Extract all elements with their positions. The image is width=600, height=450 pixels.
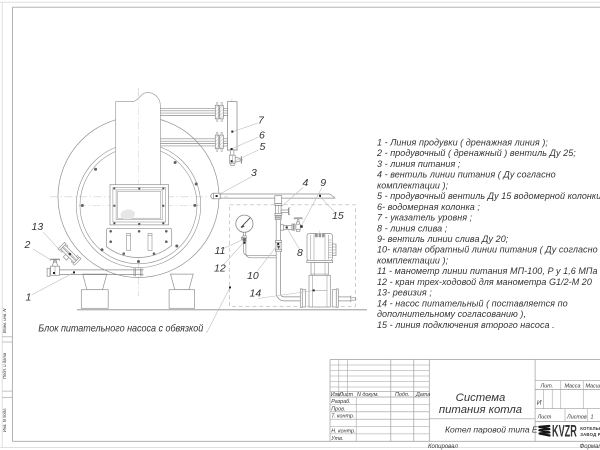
svg-text:Котел паровой типа Е: Котел паровой типа Е [445,424,538,434]
svg-text:5: 5 [260,141,266,153]
svg-text:Взам. инв. N: Взам. инв. N [2,308,7,333]
svg-text:Подп. и дата: Подп. и дата [2,352,7,379]
svg-text:Инв. N подл.: Инв. N подл. [2,408,7,432]
svg-text:ЗАВОД РУСТ: ЗАВОД РУСТ [580,432,600,437]
svg-text:12 - кран трех-ходовой для ма: 12 - кран трех-ходовой для манометра G1/… [377,277,592,287]
svg-text:15 - линия подключения второг: 15 - линия подключения второго насоса . [377,320,555,330]
svg-text:Лист: Лист [537,415,552,421]
svg-text:13- ревизия ;: 13- ревизия ; [377,288,432,298]
svg-text:Н. контр.: Н. контр. [331,429,355,435]
svg-text:3 - линия питания ;: 3 - линия питания ; [377,159,461,169]
svg-text:14: 14 [250,288,262,300]
svg-text:Масштаб: Масштаб [586,384,600,390]
svg-text:1 - Линия продувки ( дренажна: 1 - Линия продувки ( дренажная линия ); [377,137,548,147]
svg-text:13: 13 [32,221,44,233]
svg-text:11 - манометр линии питания М: 11 - манометр линии питания МП-100, Р у … [377,266,598,276]
svg-text:8: 8 [297,247,303,259]
svg-text:Пров.: Пров. [331,406,345,412]
svg-text:10- клапан обратный линии пит: 10- клапан обратный линии питания ( Ду с… [377,245,598,255]
svg-text:5 - продувочный вентиль Ду 15: 5 - продувочный вентиль Ду 15 водомерной… [377,191,600,201]
svg-text:Утв.: Утв. [330,436,343,442]
svg-text:комплектации );: комплектации ); [377,256,449,266]
svg-text:9- вентиль линии слива Ду 20: 9- вентиль линии слива Ду 20; [377,234,509,244]
svg-text:KVZR: KVZR [552,421,577,440]
svg-text:10: 10 [247,270,259,282]
svg-text:9: 9 [320,177,326,189]
svg-text:12: 12 [214,262,226,274]
svg-text:Разраб.: Разраб. [331,399,351,405]
svg-text:1: 1 [591,415,594,421]
svg-text:Дата: Дата [415,392,430,398]
svg-text:4 - вентиль линии питания ( Д: 4 - вентиль линии питания ( Ду согласно [377,170,556,180]
svg-text:Листов: Листов [566,415,587,421]
svg-text:комплектации );: комплектации ); [377,180,449,190]
svg-text:6- водомерная колонка ;: 6- водомерная колонка ; [377,202,480,212]
svg-text:Формат А4: Формат А4 [580,444,600,450]
svg-text:И: И [537,399,542,406]
svg-text:Лит.: Лит. [540,384,554,390]
svg-text:Система: Система [456,392,506,404]
svg-text:15: 15 [332,210,344,222]
svg-text:8 - линия слива ;: 8 - линия слива ; [377,223,448,233]
svg-text:Подп.: Подп. [395,392,409,398]
svg-text:6: 6 [259,129,265,141]
svg-text:3: 3 [251,167,257,179]
svg-text:2: 2 [24,239,31,251]
svg-text:11: 11 [215,245,226,257]
svg-text:14 - насос питательный ( пос: 14 - насос питательный ( поставляется по [377,298,568,308]
svg-text:питания котла: питания котла [439,404,522,416]
svg-text:Блок питательного насоса с обв: Блок питательного насоса с обвязкой [38,323,203,335]
svg-text:4: 4 [303,177,309,189]
svg-text:Лист: Лист [338,392,353,398]
svg-text:КОТЕЛЬНЫЙ: КОТЕЛЬНЫЙ [580,426,600,431]
svg-text:дополнительному согласованию ): дополнительному согласованию ), [377,309,526,319]
svg-text:Копировал: Копировал [428,444,458,450]
svg-text:2 - продувочный ( дренажный ): 2 - продувочный ( дренажный ) вентиль Ду… [376,148,576,158]
svg-text:Т. контр.: Т. контр. [331,414,354,420]
svg-text:1: 1 [26,292,32,304]
svg-text:Масса: Масса [565,384,581,390]
svg-text:N докум.: N докум. [357,392,379,398]
svg-text:7 - указатель уровня ;: 7 - указатель уровня ; [377,213,473,223]
